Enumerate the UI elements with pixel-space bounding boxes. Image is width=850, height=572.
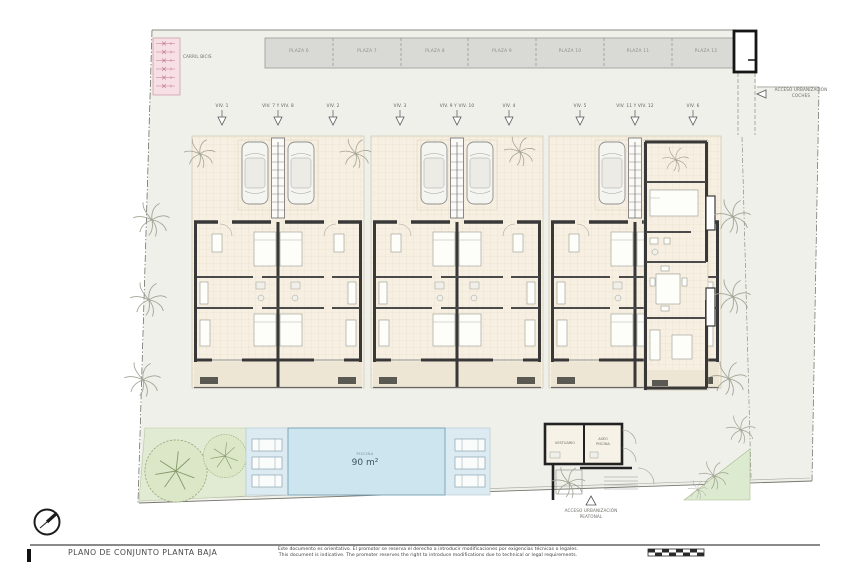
- disclaimer-en: This document is indicative. The promote…: [258, 553, 598, 558]
- parking-stall-label: PLAZA 11: [604, 50, 672, 55]
- parking-stall-label: PLAZA 6: [265, 50, 333, 55]
- sun-lounger: [252, 475, 282, 487]
- sheet-title: PLANO DE CONJUNTO PLANTA BAJA: [68, 549, 217, 558]
- building-row: [192, 136, 721, 388]
- pool-house-right-label-line1: ASEO: [585, 437, 621, 441]
- floor-plan-sheet: PLAZA 6 PLAZA 7 PLAZA 8 PLAZA 9 PLAZA 10…: [0, 0, 850, 572]
- pool-label: PISCINA: [330, 452, 400, 456]
- pool-house-right-label-line2: PISCINA: [585, 442, 621, 446]
- pool-house-left-label: VESTUARIO: [546, 441, 584, 445]
- sun-lounger: [252, 439, 282, 451]
- unit-label: VIV. 2: [298, 105, 368, 110]
- sun-lounger: [455, 457, 485, 469]
- sun-lounger: [455, 475, 485, 487]
- unit-label: VIV. 6: [658, 105, 728, 110]
- bike-strip: [153, 38, 180, 95]
- north-compass: [35, 510, 60, 535]
- end-unit-viv6: [644, 140, 715, 390]
- sun-lounger: [455, 439, 485, 451]
- parking-stall-label: PLAZA 10: [536, 50, 604, 55]
- parking-stall-label: PLAZA 7: [333, 50, 401, 55]
- bike-lane-label: CARRIL BICIS: [183, 55, 212, 60]
- parking-stall-label: PLAZA 8: [401, 50, 469, 55]
- sun-lounger: [252, 457, 282, 469]
- tree-icon: [203, 434, 246, 477]
- building-block: [192, 136, 364, 388]
- building-block: [371, 136, 543, 388]
- cars-access-label-line2: COCHES: [768, 94, 834, 99]
- ped-access-label-line2: PEATONAL: [558, 515, 624, 520]
- tree-icon: [145, 440, 207, 502]
- sheet-edge-mark: [27, 549, 31, 562]
- disclaimer-es: Este documento es orientativo. El promot…: [258, 547, 598, 552]
- site-plan-drawing: [0, 0, 850, 572]
- parking-stall-label: PLAZA 12: [672, 50, 740, 55]
- scale-bar: [648, 549, 704, 556]
- pool-area-value: 90 m²: [330, 458, 400, 468]
- parking-stall-label: PLAZA 9: [468, 50, 536, 55]
- pedestrian-access-arrow: [586, 496, 596, 505]
- garden-area: [139, 428, 247, 502]
- unit-label: VIV. 4: [474, 105, 544, 110]
